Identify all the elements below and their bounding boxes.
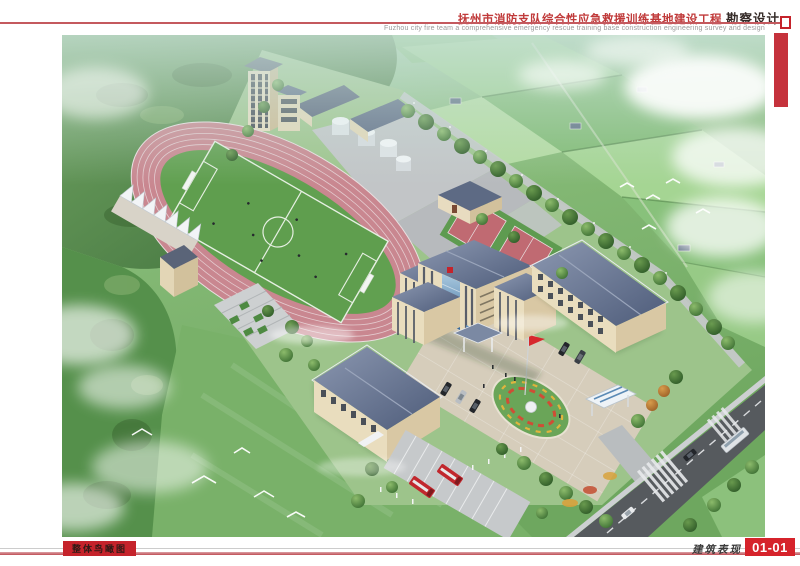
corner-square-mark xyxy=(780,16,791,29)
header-rule xyxy=(0,22,791,24)
view-label-badge: 整体鸟瞰图 xyxy=(63,541,136,556)
right-red-bar xyxy=(774,33,788,107)
category-label: 建筑表现 xyxy=(692,542,742,557)
drawing-sheet: 抚州市消防支队综合性应急救援训练基地建设工程勘察设计 Fuzhou city f… xyxy=(0,0,800,566)
subtitle-english: Fuzhou city fire team a comprehensive em… xyxy=(384,25,765,32)
sheet-number-badge: 01-01 xyxy=(745,538,795,556)
aerial-rendering-svg xyxy=(62,35,765,537)
aerial-rendering xyxy=(62,35,765,537)
